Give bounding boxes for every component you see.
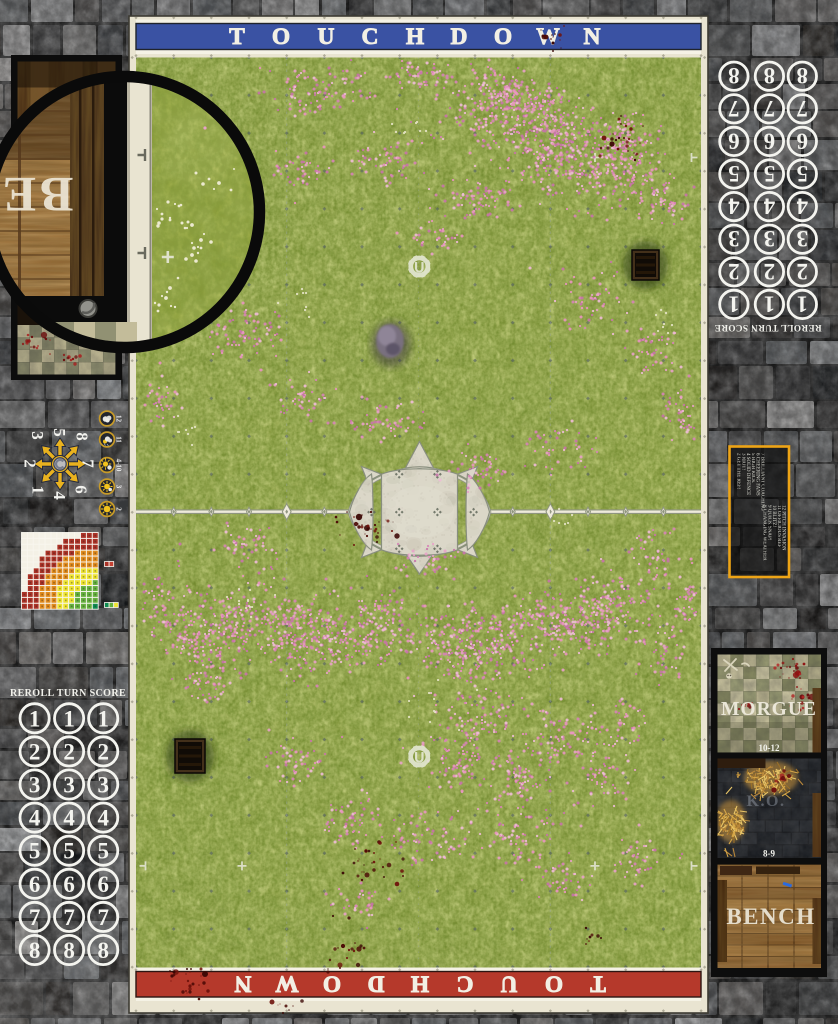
- svg-text:3: 3: [97, 773, 109, 798]
- svg-text:5: 5: [797, 161, 809, 186]
- svg-text:10 BLITZ!: 10 BLITZ!: [771, 505, 776, 527]
- svg-text:7 BRILLIANT COACHING: 7 BRILLIANT COACHING: [760, 453, 765, 511]
- svg-text:7: 7: [97, 905, 109, 930]
- svg-text:4-10: 4-10: [115, 459, 123, 472]
- svg-text:U: U: [500, 970, 517, 996]
- svg-text:BENCH: BENCH: [726, 904, 815, 929]
- svg-text:1: 1: [797, 291, 809, 316]
- svg-text:5: 5: [764, 161, 776, 186]
- svg-text:7: 7: [79, 459, 98, 468]
- svg-text:8: 8: [73, 432, 92, 441]
- svg-text:5: 5: [97, 839, 109, 864]
- svg-text:3: 3: [728, 226, 740, 251]
- svg-text:1: 1: [728, 291, 740, 316]
- svg-text:12: 12: [115, 415, 123, 423]
- svg-text:MORGUE: MORGUE: [721, 699, 817, 720]
- svg-text:2: 2: [115, 507, 123, 511]
- svg-text:6: 6: [728, 128, 740, 153]
- svg-text:REROLL TURN SCORE: REROLL TURN SCORE: [714, 323, 821, 333]
- svg-text:4: 4: [29, 806, 41, 831]
- svg-text:O: O: [272, 24, 290, 50]
- svg-text:6: 6: [764, 128, 776, 153]
- svg-text:5: 5: [63, 839, 75, 864]
- svg-text:10-12: 10-12: [759, 743, 780, 753]
- svg-text:4: 4: [728, 194, 740, 219]
- svg-text:8: 8: [728, 63, 740, 88]
- svg-text:7: 7: [29, 905, 41, 930]
- svg-text:6: 6: [97, 872, 109, 897]
- svg-text:5 HIGH KICK: 5 HIGH KICK: [750, 453, 755, 483]
- svg-text:5: 5: [728, 161, 740, 186]
- svg-text:T: T: [229, 24, 245, 50]
- svg-text:2 GET THE REF!: 2 GET THE REF!: [736, 453, 741, 490]
- svg-text:2: 2: [764, 259, 776, 284]
- svg-text:9 QUICK SNAP!: 9 QUICK SNAP!: [766, 505, 771, 541]
- svg-text:4 SOLID DEFENCE: 4 SOLID DEFENCE: [745, 453, 750, 495]
- svg-text:8-9: 8-9: [763, 849, 775, 859]
- svg-text:8: 8: [97, 938, 109, 963]
- svg-text:N: N: [584, 24, 601, 50]
- svg-text:4: 4: [763, 194, 775, 219]
- svg-text:1: 1: [29, 486, 48, 495]
- svg-text:12 PITCH INVASION: 12 PITCH INVASION: [781, 505, 786, 551]
- svg-text:3: 3: [63, 773, 75, 798]
- svg-text:5: 5: [29, 839, 41, 864]
- svg-text:4: 4: [63, 806, 75, 831]
- svg-text:7: 7: [63, 905, 75, 930]
- svg-text:H: H: [406, 24, 424, 50]
- svg-text:REROLL TURN SCORE: REROLL TURN SCORE: [10, 688, 126, 699]
- svg-text:1: 1: [97, 706, 109, 731]
- svg-text:D: D: [451, 24, 468, 50]
- svg-text:O: O: [323, 970, 341, 996]
- svg-text:N: N: [234, 970, 251, 996]
- svg-text:11 OFFICIOUS REF: 11 OFFICIOUS REF: [776, 505, 781, 548]
- svg-text:6 CHEERING FANS: 6 CHEERING FANS: [755, 453, 760, 496]
- svg-text:8: 8: [764, 63, 776, 88]
- svg-text:7: 7: [764, 96, 776, 121]
- svg-text:U: U: [318, 24, 335, 50]
- svg-text:7: 7: [728, 96, 740, 121]
- svg-text:4: 4: [796, 194, 808, 219]
- svg-text:3 RIOT!: 3 RIOT!: [740, 453, 745, 470]
- svg-text:1: 1: [63, 706, 75, 731]
- svg-text:O: O: [494, 24, 512, 50]
- svg-text:5: 5: [50, 428, 69, 437]
- svg-text:3: 3: [29, 773, 41, 798]
- svg-text:T: T: [590, 970, 606, 996]
- svg-text:H: H: [411, 970, 429, 996]
- svg-text:4: 4: [97, 806, 109, 831]
- svg-text:2: 2: [29, 739, 41, 764]
- svg-text:1: 1: [29, 706, 41, 731]
- svg-text:8: 8: [29, 938, 41, 963]
- svg-text:6: 6: [63, 872, 75, 897]
- svg-text:2: 2: [63, 739, 75, 764]
- svg-text:11: 11: [115, 436, 123, 443]
- svg-text:2: 2: [797, 259, 809, 284]
- svg-text:8: 8: [797, 63, 809, 88]
- svg-text:2: 2: [21, 459, 40, 468]
- svg-text:O: O: [545, 970, 563, 996]
- svg-text:C: C: [362, 24, 379, 50]
- svg-text:8 CHANGING WEATHER: 8 CHANGING WEATHER: [762, 505, 767, 561]
- svg-text:D: D: [368, 970, 385, 996]
- svg-text:6: 6: [72, 485, 91, 494]
- svg-text:3: 3: [115, 485, 123, 489]
- svg-text:2: 2: [728, 259, 740, 284]
- svg-text:3: 3: [764, 226, 776, 251]
- svg-text:6: 6: [29, 872, 41, 897]
- svg-text:3: 3: [797, 226, 809, 251]
- svg-text:W: W: [275, 970, 299, 996]
- svg-text:BE: BE: [0, 167, 73, 223]
- svg-text:2: 2: [97, 739, 109, 764]
- svg-text:6: 6: [797, 128, 809, 153]
- svg-text:1: 1: [764, 291, 776, 316]
- svg-text:7: 7: [797, 96, 809, 121]
- svg-text:4: 4: [50, 491, 69, 500]
- svg-text:C: C: [457, 970, 474, 996]
- svg-text:8: 8: [63, 938, 75, 963]
- svg-text:3: 3: [28, 431, 47, 440]
